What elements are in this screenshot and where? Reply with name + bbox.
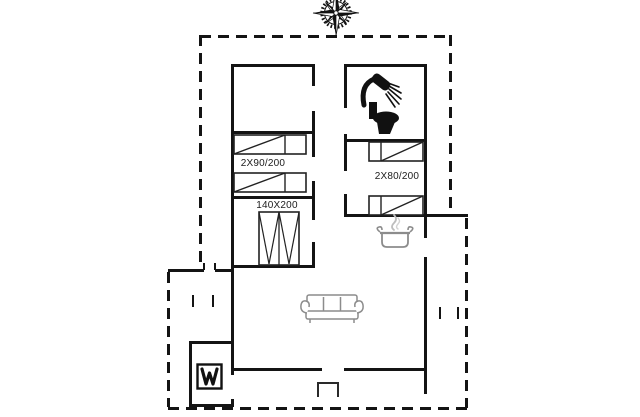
entrance-step — [317, 383, 319, 397]
cooking-pot-icon — [374, 213, 416, 251]
entrance-step — [317, 382, 339, 384]
terrace-boundary-left-upper — [199, 35, 202, 267]
compass-rose-icon — [312, 0, 360, 37]
wall-top-right-block — [344, 64, 427, 67]
terrace-mark — [212, 295, 214, 307]
bed-icon — [233, 134, 307, 155]
wall-east-upper — [424, 64, 427, 238]
terrace-boundary-right-lower — [465, 218, 468, 408]
wall-annex-east-stub — [231, 369, 234, 375]
wall-entry — [215, 269, 232, 272]
wall-east-stub — [424, 371, 427, 394]
wall-hall-east — [344, 134, 347, 171]
sofa-icon — [299, 289, 365, 329]
wall-top-left-block — [232, 64, 315, 67]
wall-west — [231, 64, 234, 369]
door-jamb — [214, 263, 216, 270]
bed-icon — [368, 141, 424, 162]
bed-size-label-right: 2X80/200 — [358, 171, 436, 182]
terrace-mark — [192, 295, 194, 307]
wall-bedroom2-divider — [232, 196, 313, 199]
terrace-boundary-right-upper — [449, 35, 452, 213]
wall-entry — [178, 269, 204, 272]
terrace-boundary-bottom — [168, 407, 468, 410]
wall-hall-west — [312, 242, 315, 268]
wall-annex-west — [189, 341, 192, 407]
terrace-mark — [439, 307, 441, 319]
wardrobe-icon — [258, 211, 300, 266]
wall-hall-east — [344, 194, 347, 217]
bed-size-label-left: 2X90/200 — [224, 158, 302, 169]
door-jamb — [203, 263, 205, 270]
entrance-step — [337, 383, 339, 397]
wall-hall-west — [312, 111, 315, 157]
terrace-mark — [457, 307, 459, 319]
wall-south-right — [344, 368, 427, 371]
wardrobe-size-label: 140X200 — [238, 200, 316, 211]
wall-annex-east-stub — [231, 399, 234, 407]
wall-hall-west — [312, 64, 315, 86]
terrace-boundary-top — [200, 35, 452, 38]
wall-hall-east — [344, 64, 347, 108]
floor-plan: 2X90/200 140X200 2X80/200 — [0, 0, 640, 417]
wall-annex-top — [190, 341, 232, 344]
wall-south-left — [232, 368, 322, 371]
bed-icon — [233, 172, 307, 193]
wall-annex-bottom — [190, 404, 232, 407]
toilet-icon — [365, 102, 403, 136]
terrace-boundary-left-lower — [167, 272, 170, 407]
wall-east-lower — [424, 257, 427, 371]
wood-stove-icon — [196, 363, 223, 390]
